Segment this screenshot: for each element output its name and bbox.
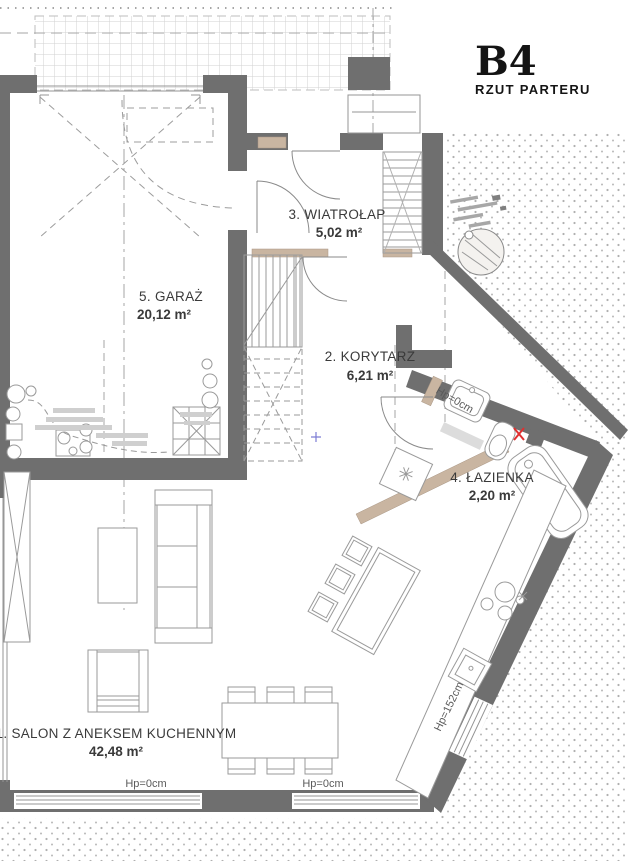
room-label-salon: 1. SALON Z ANEKSEM KUCHENNYM xyxy=(0,726,236,741)
dining-chair xyxy=(267,687,294,703)
unit-code: B4 xyxy=(475,38,537,85)
armchair xyxy=(88,650,148,712)
room-area-korytarz: 6,21 m² xyxy=(347,368,394,383)
terrain-planter xyxy=(458,229,504,275)
room-label-korytarz: 2. KORYTARZ xyxy=(325,349,416,364)
sill-label-bottom-left: Hp=0cm xyxy=(125,778,166,790)
entrance-door xyxy=(292,151,340,199)
room-label-wiatrolap: 3. WIATROŁAP xyxy=(288,207,385,222)
sofa xyxy=(155,490,212,643)
dining-chair xyxy=(305,758,332,774)
plan-title: RZUT PARTERU xyxy=(475,82,591,97)
dining-table-set xyxy=(222,687,338,774)
dining-chair xyxy=(228,687,255,703)
room-area-lazienka: 2,20 m² xyxy=(469,488,516,503)
room-label-lazienka: 4. ŁAZIENKA xyxy=(450,470,534,485)
floor-plan: 1. SALON Z ANEKSEM KUCHENNYM 42,48 m² 2.… xyxy=(0,0,628,861)
dining-chair xyxy=(305,687,332,703)
dining-chair xyxy=(267,758,294,774)
room-area-garaz: 20,12 m² xyxy=(137,307,192,322)
corridor-living-door xyxy=(381,397,433,449)
hall-corridor-door xyxy=(303,257,347,301)
room-label-garaz: 5. GARAŻ xyxy=(139,289,203,304)
coffee-table xyxy=(98,528,137,603)
site-reference-lines xyxy=(0,8,445,610)
blue-cross-marker xyxy=(311,432,321,442)
bar-stool xyxy=(342,536,372,566)
exterior-stairs xyxy=(383,152,422,253)
bar-stool xyxy=(308,592,338,622)
sill-label-bottom-center: Hp=0cm xyxy=(302,778,343,790)
kitchen-island xyxy=(332,547,421,654)
wardrobe xyxy=(4,472,30,642)
room-area-salon: 42,48 m² xyxy=(89,744,144,759)
title-block: B4 RZUT PARTERU xyxy=(475,38,591,97)
garage-note-bars xyxy=(35,408,148,446)
door-swings xyxy=(257,151,433,449)
dining-table xyxy=(222,703,338,758)
dining-chair xyxy=(228,758,255,774)
floor-plan-page: 1. SALON Z ANEKSEM KUCHENNYM 42,48 m² 2.… xyxy=(0,0,628,861)
room-area-wiatrolap: 5,02 m² xyxy=(316,225,363,240)
installation-shaft xyxy=(173,359,220,455)
garage-door-swing xyxy=(40,97,232,237)
bar-stool xyxy=(325,564,355,594)
interior-stairs xyxy=(244,255,302,461)
